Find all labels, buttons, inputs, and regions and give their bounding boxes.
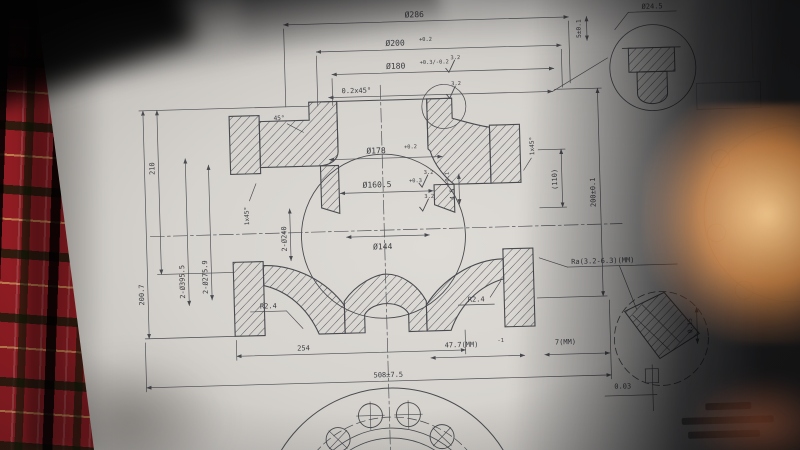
dim-2x240: 2-Ø240 [280,226,289,252]
right-lower-flange [503,248,535,327]
dim-144: Ø144 [373,241,393,252]
finish-value-2: 3.2 [451,81,461,87]
dim-508: 508±7.5 [373,371,403,380]
dim-200-right: 200±0.1 [589,177,598,207]
dim-5: 5±0.1 [575,19,583,38]
detail-dim-24-5: Ø24.5 [641,2,662,11]
detail-dim-0-15: 0.15 [687,318,694,333]
right-upper-arm [427,97,491,185]
dim-47-7-tol: -1 [497,338,504,344]
finish-value-4: 3.2 [424,194,434,200]
detail-dim-0-03: 0.03 [614,382,631,390]
dim-286: Ø286 [404,9,424,20]
engineering-drawing: Ø286 Ø200 +0.2 Ø180 +0.3/-0.2 0.2x45° Ø1… [0,0,800,450]
finish-value-1: 3.2 [450,55,460,61]
dim-110: (110) [551,169,560,190]
left-upper-flange [229,116,261,175]
dim-chamfer-02: 0.2x45° [342,86,372,95]
dim-step: 4.5 [449,188,456,200]
roughness-note: Ra(3.2-6.3)(MM) [571,256,634,266]
detail-view-top-right [608,9,761,112]
radius-left: R2.4 [260,302,277,310]
finish-value-3: 3.2 [424,170,434,176]
dim-254: 254 [297,344,310,352]
dim-chamfer-1x45-right: 1x45° [528,137,537,156]
dim-200: Ø200 [385,38,405,49]
dim-chamfer-1x45-left: 1x45° [243,207,252,226]
dim-2x395-5: 2-Ø395.5 [178,265,187,299]
illegible-notes [681,401,774,439]
dim-2x275-9: 2-Ø275.9 [201,260,210,294]
dim-47-7: 47.7(MM) [445,341,479,350]
dim-7mm: 7(MM) [555,338,576,347]
right-lower-web [425,259,505,331]
left-lower-flange [233,262,265,337]
dim-210: 210 [148,162,156,175]
dim-180-tol: +0.3/-0.2 [420,59,449,66]
radius-right: R2.4 [468,295,485,303]
dim-178: Ø178 [366,145,386,156]
dim-160-5-tol: +0.3 [409,178,422,184]
faint-right-view [698,0,800,304]
left-upper-arm [259,101,339,167]
dim-200-tol: +0.2 [419,37,432,43]
bottom-wall [344,273,428,333]
dim-200-7: 200.7 [138,284,147,305]
dim-step-tol: +0.1 [445,172,451,185]
left-lower-web [263,263,345,335]
dim-160-5: Ø160.5 [362,179,391,190]
dim-180: Ø180 [386,61,406,72]
right-upper-flange [489,124,521,183]
left-mid-wall [320,165,339,213]
flange-plan-view [259,384,526,450]
centerlines [146,79,628,450]
dim-178-tol: +0.2 [404,144,417,150]
photo-of-engineering-drawing: Ø286 Ø200 +0.2 Ø180 +0.3/-0.2 0.2x45° Ø1… [0,0,800,450]
dim-chamfer-45: 45° [273,114,284,122]
detail-view-bottom-right [602,290,710,412]
